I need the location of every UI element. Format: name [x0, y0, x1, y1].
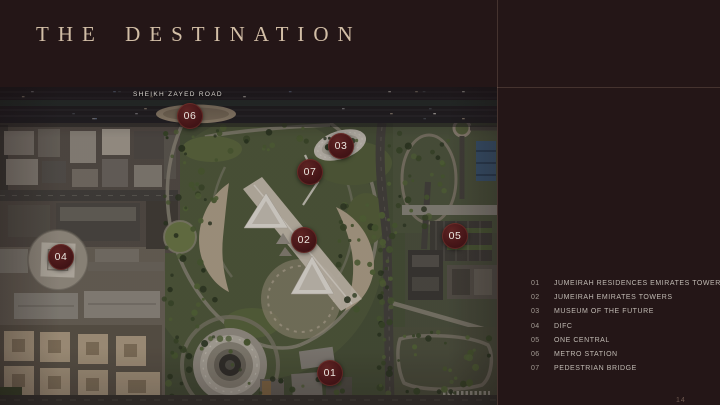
legend-item-number: 03: [531, 308, 554, 315]
map-marker-07: 07: [297, 159, 323, 185]
legend-item-02: 02JUMEIRAH EMIRATES TOWERS: [531, 290, 720, 304]
legend-item-number: 04: [531, 323, 554, 330]
legend: 01JUMEIRAH RESIDENCES EMIRATES TOWERS02J…: [531, 276, 720, 376]
legend-item-03: 03MUSEUM OF THE FUTURE: [531, 305, 720, 319]
legend-item-07: 07PEDESTRIAN BRIDGE: [531, 362, 720, 376]
legend-item-label: JUMEIRAH EMIRATES TOWERS: [554, 294, 673, 301]
page-title: THE DESTINATION: [36, 22, 362, 47]
map-overlay: SHEIKH ZAYED ROAD 01020304050607: [0, 87, 497, 405]
map-marker-01: 01: [317, 360, 343, 386]
frame-horizontal-divider: [497, 87, 720, 88]
legend-item-05: 05ONE CENTRAL: [531, 333, 720, 347]
map-marker-05: 05: [442, 223, 468, 249]
legend-item-04: 04DIFC: [531, 319, 720, 333]
legend-item-06: 06METRO STATION: [531, 347, 720, 361]
legend-item-number: 01: [531, 280, 554, 287]
legend-item-number: 05: [531, 337, 554, 344]
map-marker-03: 03: [328, 133, 354, 159]
legend-item-01: 01JUMEIRAH RESIDENCES EMIRATES TOWERS: [531, 276, 720, 290]
brochure-slide: THE DESTINATION: [0, 0, 720, 405]
road-label: SHEIKH ZAYED ROAD: [133, 91, 223, 98]
legend-item-number: 07: [531, 365, 554, 372]
page-number: 14: [676, 397, 686, 404]
legend-item-label: DIFC: [554, 323, 573, 330]
legend-item-label: JUMEIRAH RESIDENCES EMIRATES TOWERS: [554, 280, 720, 287]
legend-item-label: ONE CENTRAL: [554, 337, 610, 344]
legend-item-number: 02: [531, 294, 554, 301]
legend-item-label: PEDESTRIAN BRIDGE: [554, 365, 637, 372]
frame-vertical-divider: [497, 0, 498, 405]
map-marker-02: 02: [291, 227, 317, 253]
map-marker-06: 06: [177, 103, 203, 129]
aerial-map: SHEIKH ZAYED ROAD 01020304050607: [0, 87, 497, 405]
legend-item-label: METRO STATION: [554, 351, 618, 358]
legend-item-label: MUSEUM OF THE FUTURE: [554, 308, 654, 315]
legend-item-number: 06: [531, 351, 554, 358]
map-marker-04: 04: [48, 244, 74, 270]
